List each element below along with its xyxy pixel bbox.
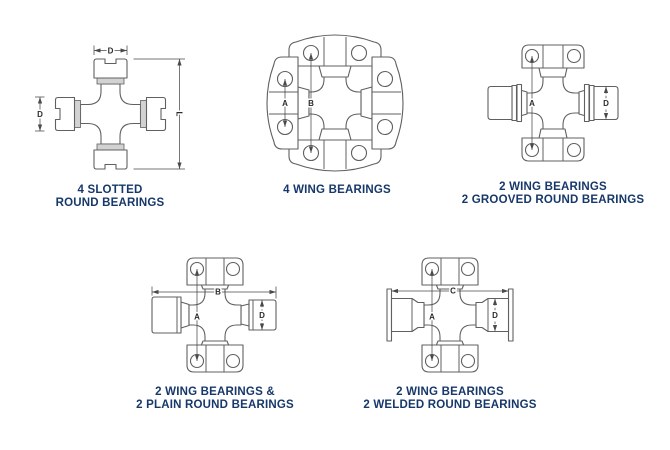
wing-plate-bottom xyxy=(289,140,381,171)
cross-body xyxy=(309,77,361,129)
slotted-cup-bottom xyxy=(94,150,127,169)
neck-bottom xyxy=(539,129,567,138)
diagram-2-wing-2-grooved-round-bearings: A D xyxy=(473,28,633,178)
dimension-a: A xyxy=(529,56,535,150)
round-bearing-left xyxy=(488,87,512,120)
neck-top xyxy=(539,68,567,77)
seal-band-bottom xyxy=(97,144,124,150)
bolt-hole xyxy=(568,144,581,157)
cross-body xyxy=(81,84,141,144)
diagram-4-wing-bearings: A B xyxy=(255,23,415,183)
caption-line: 2 WING BEARINGS xyxy=(330,386,570,399)
dimension-label-b: B xyxy=(215,288,221,297)
caption-2-wing-2-welded-round-bearings: 2 WING BEARINGS 2 WELDED ROUND BEARINGS xyxy=(330,386,570,412)
bolt-hole xyxy=(568,50,581,63)
dimension-label-a: A xyxy=(282,99,288,108)
diagram-2-wing-2-plain-round-bearings: B A D xyxy=(135,240,295,390)
neck-left xyxy=(181,302,189,328)
neck-bottom xyxy=(319,129,351,140)
wing-plate-top xyxy=(289,35,381,66)
u-joint-bearing-styles-figure: D D L xyxy=(0,0,670,450)
dimension-b: B xyxy=(308,53,314,153)
caption-line: 2 WING BEARINGS & xyxy=(95,386,335,399)
slotted-cup-right xyxy=(147,98,166,131)
bolt-hole xyxy=(227,263,240,276)
u-joint-cross-illustration xyxy=(56,59,166,169)
neck-right xyxy=(361,87,372,119)
caption-2-wing-2-grooved-round-bearings: 2 WING BEARINGS 2 GROOVED ROUND BEARINGS xyxy=(433,181,670,207)
weld-flange-left xyxy=(387,289,392,341)
slotted-cup-left xyxy=(56,98,75,131)
dimension-d-top: D xyxy=(94,46,127,56)
dimension-label-d: D xyxy=(492,311,498,320)
seal-band-left xyxy=(75,101,81,128)
caption-line: ROUND BEARINGS xyxy=(0,197,230,210)
bolt-hole xyxy=(378,72,393,87)
caption-line: 4 WING BEARINGS xyxy=(217,184,457,197)
bolt-hole xyxy=(227,355,240,368)
caption-line: 4 SLOTTED xyxy=(0,184,230,197)
dimension-label-a: A xyxy=(194,313,200,322)
dimension-label-a: A xyxy=(529,99,535,108)
caption-4-wing-bearings: 4 WING BEARINGS xyxy=(217,184,457,197)
bolt-hole xyxy=(462,263,475,276)
u-joint-cross-illustration xyxy=(152,258,276,372)
caption-line: 2 WING BEARINGS xyxy=(433,181,670,194)
neck-right xyxy=(241,304,249,326)
caption-line: 2 GROOVED ROUND BEARINGS xyxy=(433,194,670,207)
groove-ridge xyxy=(512,86,517,121)
dimension-d-left: D xyxy=(35,97,45,131)
dimension-c: C xyxy=(392,287,509,296)
groove-ridge xyxy=(590,86,595,121)
bolt-hole xyxy=(352,46,367,61)
u-joint-cross-illustration xyxy=(488,45,618,161)
dimension-label-b: B xyxy=(308,99,314,108)
dimension-label-d: D xyxy=(259,311,265,320)
bolt-hole xyxy=(378,120,393,135)
diagram-2-wing-2-welded-round-bearings: C A D xyxy=(370,240,530,390)
seal-band-right xyxy=(141,101,147,128)
dimension-label-d-left: D xyxy=(37,110,43,119)
dimension-label-d-top: D xyxy=(108,46,114,55)
round-bearing-left xyxy=(392,299,425,332)
weld-flange-right xyxy=(509,289,514,341)
diagram-4-slotted-round-bearings: D D L xyxy=(28,34,193,194)
caption-line: 2 WELDED ROUND BEARINGS xyxy=(330,399,570,412)
bolt-hole xyxy=(352,146,367,161)
slotted-cup-top xyxy=(94,59,127,78)
caption-2-wing-2-plain-round-bearings: 2 WING BEARINGS & 2 PLAIN ROUND BEARINGS xyxy=(95,386,335,412)
bolt-hole xyxy=(462,355,475,368)
caption-line: 2 PLAIN ROUND BEARINGS xyxy=(95,399,335,412)
dimension-label-d: D xyxy=(603,99,609,108)
dimension-label-l: L xyxy=(175,112,184,117)
seal-band-top xyxy=(97,78,124,84)
wing-plate-right xyxy=(372,57,403,149)
caption-4-slotted-round-bearings: 4 SLOTTED ROUND BEARINGS xyxy=(0,184,230,210)
groove-ridge xyxy=(517,85,522,122)
dimension-label-a: A xyxy=(429,313,435,322)
dimension-label-c: C xyxy=(450,287,456,296)
groove-ridge xyxy=(585,85,590,122)
neck-top xyxy=(319,66,351,77)
